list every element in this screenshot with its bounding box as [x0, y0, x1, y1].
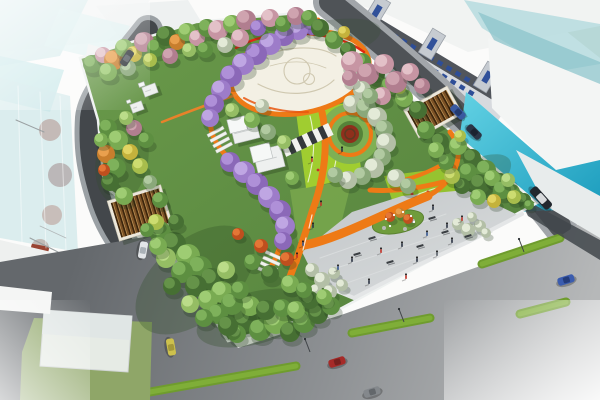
tree-highlight: [198, 43, 208, 53]
tree-highlight: [233, 54, 246, 67]
tree-highlight: [288, 302, 299, 313]
tree-highlight: [375, 55, 387, 67]
tree-highlight: [363, 89, 373, 99]
tree-highlight: [337, 279, 344, 286]
tree-highlight: [232, 282, 243, 293]
person: [451, 239, 453, 243]
tree-highlight: [202, 110, 213, 121]
tree-highlight: [368, 108, 380, 120]
tree-highlight: [297, 283, 307, 293]
tree-highlight: [278, 136, 286, 144]
tree-highlight: [468, 212, 474, 218]
tree-highlight: [95, 134, 103, 142]
person: [405, 275, 407, 279]
tree-highlight: [259, 187, 272, 200]
person: [461, 217, 463, 221]
tree-highlight: [410, 102, 421, 113]
tree-highlight: [133, 159, 143, 169]
tree-highlight: [274, 300, 285, 311]
tree-highlight: [282, 276, 293, 287]
tree-highlight: [343, 71, 353, 81]
tree-highlight: [190, 31, 200, 41]
tree-highlight: [386, 72, 399, 85]
tree-highlight: [116, 188, 127, 199]
person: [341, 148, 343, 152]
tree-highlight: [255, 240, 263, 248]
tree-highlight: [170, 35, 180, 45]
tree-highlight: [109, 131, 121, 143]
tree-highlight: [219, 317, 231, 329]
tree-highlight: [247, 174, 260, 187]
tree-highlight: [163, 49, 173, 59]
tree-highlight: [179, 24, 190, 35]
tree-highlight: [453, 218, 460, 225]
tree-highlight: [261, 125, 271, 135]
tree-highlight: [233, 228, 240, 235]
tree-highlight: [177, 245, 191, 259]
tree-highlight: [339, 26, 346, 33]
tree-highlight: [429, 143, 439, 153]
tree-highlight: [212, 81, 224, 93]
tree-highlight: [141, 224, 149, 232]
tree-highlight: [100, 120, 111, 131]
tree-highlight: [226, 104, 234, 112]
tree-highlight: [315, 273, 325, 283]
tree-highlight: [183, 44, 191, 52]
tree-highlight: [157, 27, 169, 39]
tree-highlight: [256, 100, 264, 108]
tree-highlight: [341, 43, 351, 53]
tree-highlight: [404, 214, 410, 220]
tree-highlight: [462, 224, 470, 232]
tree-highlight: [281, 253, 289, 261]
tree-highlight: [502, 174, 510, 182]
person: [302, 242, 304, 246]
tree-highlight: [418, 122, 429, 133]
tree-highlight: [144, 176, 152, 184]
person: [380, 249, 382, 253]
tree-highlight: [232, 30, 243, 41]
tree-highlight: [224, 16, 235, 27]
tree-highlight: [221, 66, 234, 79]
person: [296, 254, 298, 258]
person: [426, 232, 428, 236]
tree-highlight: [245, 113, 255, 123]
tree-highlight: [149, 215, 159, 225]
tree-highlight: [262, 10, 273, 21]
tree-highlight: [281, 323, 293, 335]
tree-highlight: [286, 172, 294, 180]
person: [368, 280, 370, 284]
tree-highlight: [306, 264, 314, 272]
tree-highlight: [358, 64, 371, 77]
tree-highlight: [328, 168, 338, 178]
tree-highlight: [401, 179, 411, 189]
tree-highlight: [471, 175, 483, 187]
tree-highlight: [205, 95, 217, 107]
tree-highlight: [245, 255, 255, 265]
tree-highlight: [172, 262, 185, 275]
tree-highlight: [376, 121, 387, 132]
person: [312, 224, 314, 228]
tree-highlight: [342, 52, 355, 65]
tree-highlight: [221, 153, 233, 165]
tree-highlight: [120, 112, 128, 120]
render-root: [0, 0, 600, 400]
tree-highlight: [402, 64, 413, 75]
person: [432, 206, 434, 210]
tree-highlight: [275, 233, 286, 244]
tree-highlight: [460, 164, 471, 175]
person: [337, 266, 339, 270]
tree-highlight: [415, 79, 425, 89]
tree-highlight: [386, 212, 392, 218]
person: [351, 258, 353, 262]
tree-highlight: [396, 208, 402, 214]
tree-highlight: [329, 267, 336, 274]
tree-highlight: [276, 17, 286, 27]
tree-highlight: [182, 296, 193, 307]
tree-highlight: [218, 38, 228, 48]
tree-highlight: [388, 170, 399, 181]
tree-highlight: [377, 134, 389, 146]
tree-highlight: [234, 162, 247, 175]
tree-highlight: [525, 200, 531, 206]
tree-highlight: [464, 150, 475, 161]
person: [311, 158, 313, 162]
tree-highlight: [455, 130, 462, 137]
tree-highlight: [326, 32, 337, 43]
tree-highlight: [123, 145, 133, 155]
person: [416, 258, 418, 262]
tree-highlight: [485, 171, 495, 181]
tree-highlight: [344, 96, 355, 107]
tree-highlight: [164, 278, 175, 289]
tree-highlight: [276, 217, 288, 229]
person: [436, 252, 438, 256]
tree-highlight: [270, 201, 283, 214]
tree-highlight: [196, 310, 207, 321]
tree-highlight: [477, 161, 489, 173]
tree-highlight: [317, 290, 327, 300]
tree-highlight: [99, 164, 106, 171]
tree-highlight: [374, 149, 385, 160]
tree-highlight: [251, 21, 261, 31]
tree-highlight: [237, 11, 249, 23]
tree-highlight: [186, 276, 199, 289]
tree-highlight: [482, 228, 488, 234]
person: [401, 243, 403, 247]
tree-highlight: [209, 21, 221, 33]
tree-highlight: [257, 301, 269, 313]
park-aerial-render: [0, 0, 600, 400]
tree-highlight: [218, 262, 229, 273]
tree-highlight: [153, 193, 163, 203]
tree-highlight: [139, 133, 149, 143]
tree-highlight: [302, 11, 312, 21]
tree-highlight: [262, 266, 273, 277]
tree-highlight: [312, 20, 323, 31]
tree-highlight: [508, 191, 516, 199]
tree-highlight: [199, 291, 211, 303]
tree-highlight: [169, 215, 179, 225]
tree-highlight: [288, 8, 299, 19]
person: [446, 224, 448, 228]
person: [320, 202, 322, 206]
tree-highlight: [488, 195, 496, 203]
